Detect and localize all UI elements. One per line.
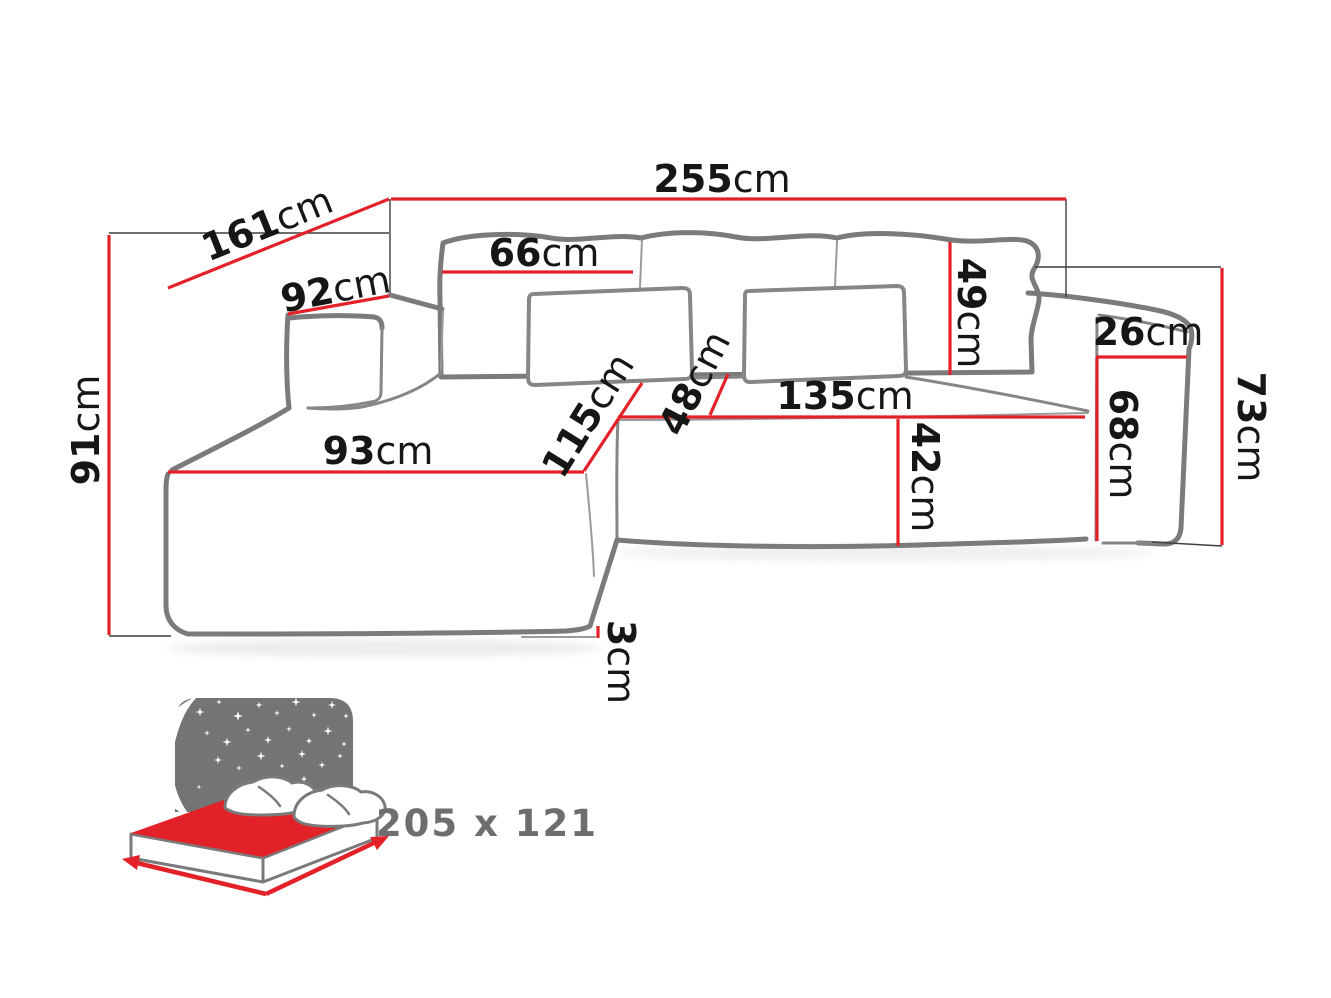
back-cushion-division-left xyxy=(640,240,642,287)
deck-edge-right xyxy=(906,377,1088,411)
dim-label-49: 49cm xyxy=(949,258,993,369)
dim-label-93: 93cm xyxy=(323,429,434,473)
chaise-section xyxy=(166,472,594,634)
dim-label-26: 26cm xyxy=(1093,310,1204,354)
shadow-chaise xyxy=(167,639,603,657)
dim-label-73: 73cm xyxy=(1229,372,1273,483)
dim-label-3: 3cm xyxy=(599,620,643,704)
dim-label-255: 255cm xyxy=(653,157,790,201)
pillow-small-right xyxy=(744,286,906,382)
dim-label-68: 68cm xyxy=(1101,389,1145,500)
sleeping-function-bed-icon: 205 x 121 xyxy=(122,698,598,895)
seat-front xyxy=(590,412,1090,626)
chaise-body xyxy=(166,472,593,634)
dim-label-66: 66cm xyxy=(489,231,600,275)
seat-to-chaise-sweep xyxy=(590,540,617,626)
bed-width-arrowhead xyxy=(122,855,140,870)
left-armrest-front-face xyxy=(289,318,382,408)
left-armrest-left-edge xyxy=(287,315,289,408)
sleeping-area-size-label: 205 x 121 xyxy=(376,802,598,845)
sofa-dimension-diagram: 255cm 161cm 92cm 91cm 66cm 49cm 26cm 73c… xyxy=(0,0,1331,998)
back-cushion-division-right xyxy=(835,241,837,286)
seat-front-left-edge xyxy=(617,420,618,538)
dim-label-135: 135cm xyxy=(776,374,913,418)
dim-label-91: 91cm xyxy=(64,375,108,486)
armrest-to-chaise-sweep xyxy=(172,408,289,470)
diagram-canvas: 255cm 161cm 92cm 91cm 66cm 49cm 26cm 73c… xyxy=(0,0,1331,998)
dim-label-42: 42cm xyxy=(903,422,947,533)
dim-label-161: 161cm xyxy=(195,178,339,270)
